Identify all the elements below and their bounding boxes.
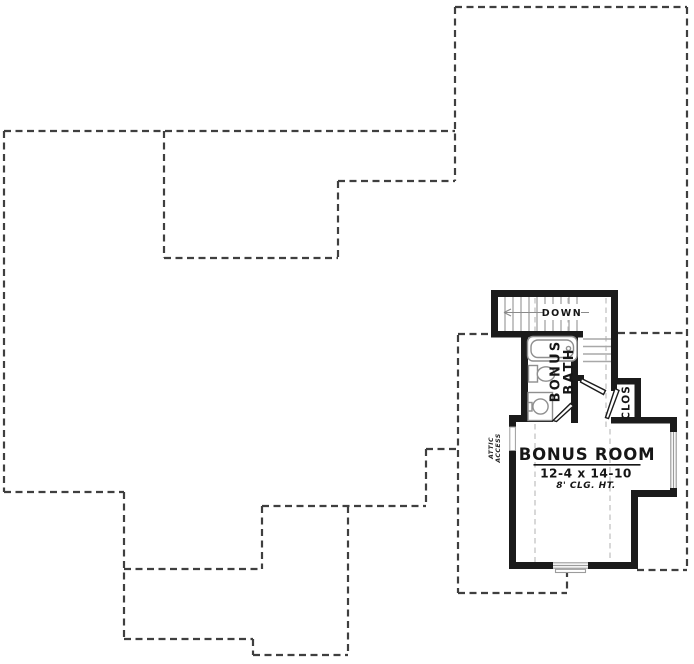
room-title-block: BONUS ROOM 12-4 x 14-10 8' CLG. HT. [519, 445, 656, 491]
room-right-wall-lower [631, 490, 638, 562]
ceiling-height: 8' CLG. HT. [556, 481, 616, 491]
walls [491, 290, 677, 569]
bonus-bath-label: BONUS BATH [549, 340, 578, 403]
door-bath [553, 404, 574, 422]
door-closet [606, 389, 620, 419]
room-left-wall-upper [509, 422, 516, 427]
floor-plan-svg: DOWN [0, 0, 694, 664]
attic-access-line1: ATTIC [488, 437, 495, 460]
room-step-wall [631, 490, 677, 497]
roof-outline [4, 7, 687, 655]
bonus-bath-line2: BATH [562, 347, 577, 395]
attic-access-hatch [510, 427, 516, 451]
floor-plan: DOWN [0, 0, 694, 664]
attic-access-label: ATTIC ACCESS [488, 433, 502, 464]
window-right [670, 432, 678, 488]
attic-access-line2: ACCESS [495, 433, 502, 464]
down-label: DOWN [542, 308, 582, 319]
closet-right-wall [635, 378, 642, 423]
svg-text:CLOS.: CLOS. [621, 380, 633, 420]
room-title: BONUS ROOM [519, 445, 656, 464]
stair-top-wall [491, 290, 618, 297]
door-bonus-room [581, 379, 606, 395]
window-bottom [553, 562, 588, 573]
stair-lower-treads [583, 339, 611, 362]
closet-label: CLOS. [621, 380, 633, 420]
room-left-wall [509, 451, 516, 570]
room-dimensions: 12-4 x 14-10 [540, 467, 632, 481]
stair-right-wall [611, 297, 618, 384]
